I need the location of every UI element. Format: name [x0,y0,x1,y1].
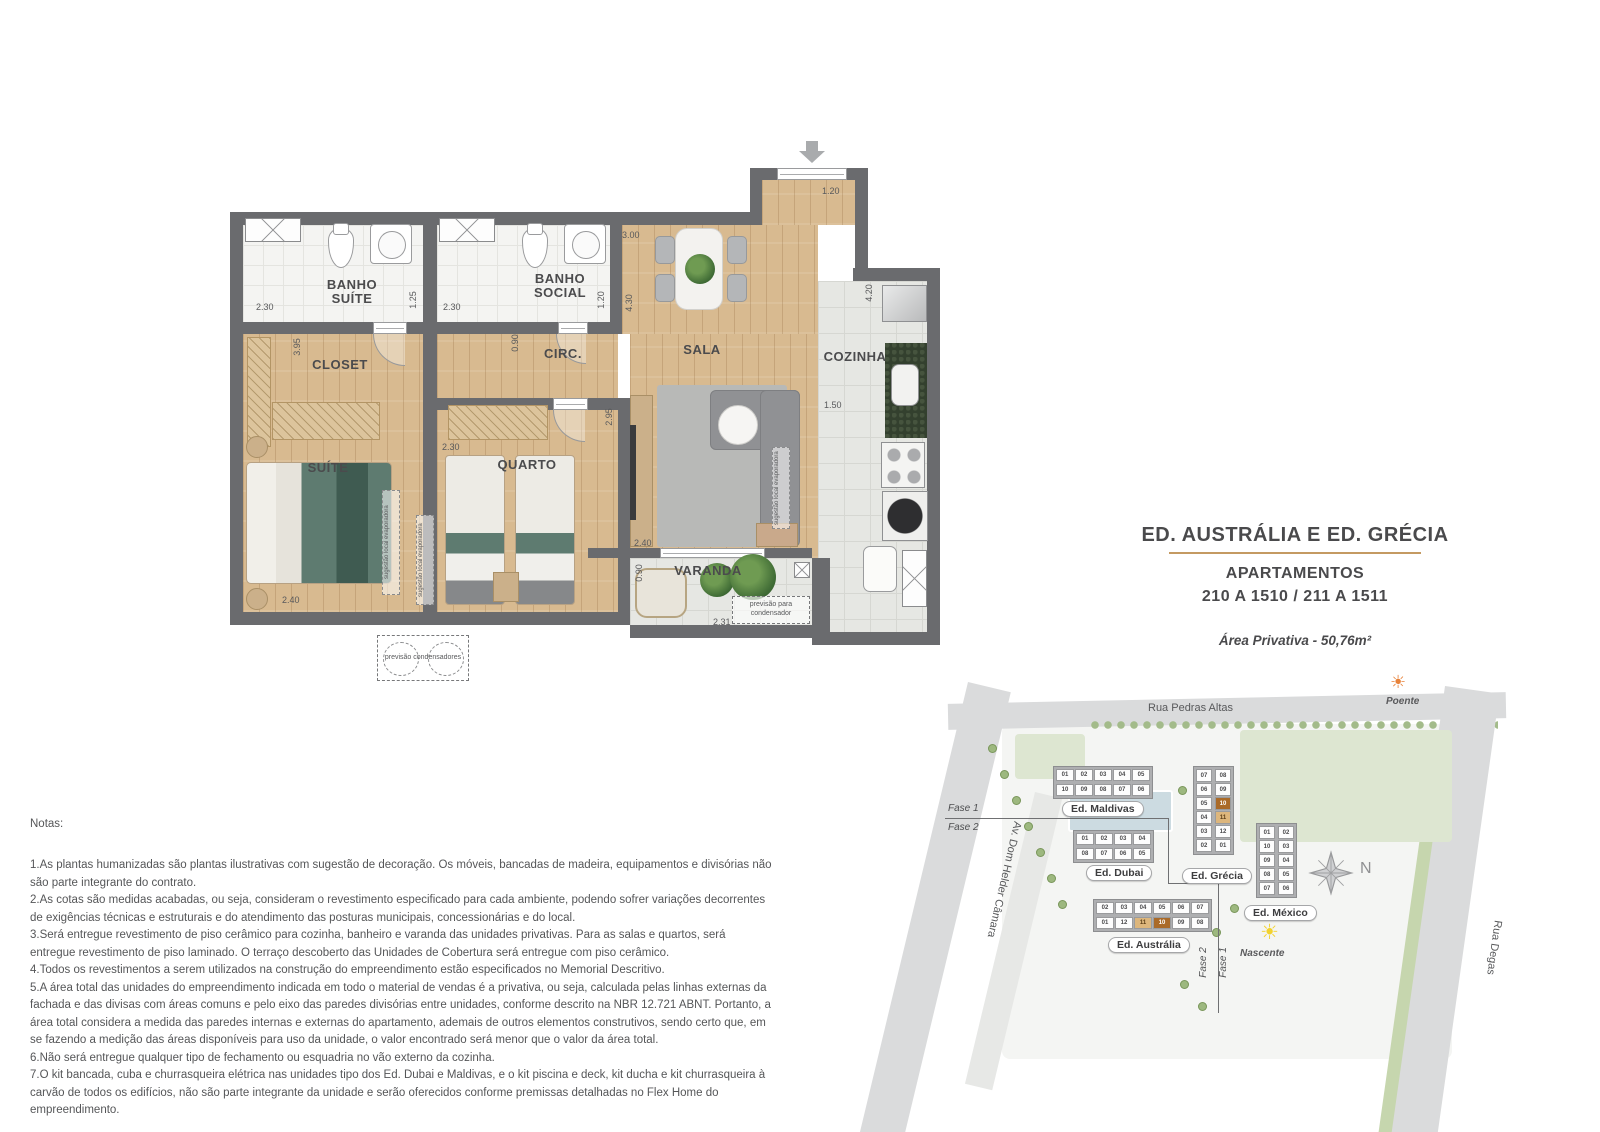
wall-bath-bottom-1 [230,322,373,334]
fridge-icon [882,285,927,322]
unit-cell-06: 06 [1172,902,1190,914]
unit-cell-11: 11 [1215,811,1231,824]
suite-nightstand-2 [246,588,268,610]
dim-varanda-231: 2.31 [713,617,731,627]
dim-bsocial-230: 2.30 [443,302,461,312]
sink-suite-icon [370,224,412,264]
tree-icon [1024,822,1033,831]
unit-cell-08: 08 [1191,917,1209,929]
unit-cell-01: 01 [1056,769,1074,781]
unit-cell-06: 06 [1196,783,1212,796]
fase2-label-vertical: Fase 2 [1198,947,1209,978]
unit-cell-01: 01 [1096,917,1114,929]
wall-top [230,212,762,225]
dim-bsuite-125: 1.25 [408,291,418,309]
room-label-closet: CLOSET [295,358,385,372]
wall-varanda-stub-r [765,548,812,558]
evaporator-note-suite: sugestão local evaporadora [382,490,400,595]
notes-heading: Notas: [30,816,772,833]
closet-shelf [272,402,380,440]
brochure-page: sugestão local evaporadora sugestão loca… [0,0,1600,1132]
dim-sala-430: 4.30 [624,294,634,312]
unit-cell-08: 08 [1076,848,1094,860]
entry-door [777,168,847,180]
unit-cell-12: 12 [1215,825,1231,838]
unit-cell-04: 04 [1133,833,1151,845]
tree-icon [1198,1002,1207,1011]
quarto-door [553,398,588,410]
unit-cell-03: 03 [1094,769,1112,781]
room-label-banho-social: BANHO SOCIAL [520,272,600,301]
wall-left [230,212,243,625]
compass-icon [1308,850,1354,896]
unit-cell-08: 08 [1259,868,1275,881]
unit-cell-05: 05 [1133,848,1151,860]
dim-circ-090: 0.90 [510,334,520,352]
dim-bsocial-120: 1.20 [596,291,606,309]
street-rua-degas: Rua Degas [1484,919,1504,975]
unit-cell-09: 09 [1075,784,1093,796]
dining-chair-3 [727,236,747,264]
building-maldivas: 01020304051009080706 [1053,766,1153,799]
unit-cell-05: 05 [1132,769,1150,781]
compass-n-label: N [1360,860,1372,878]
sink-social-icon [564,224,606,264]
room-label-banho-suite: BANHO SUÍTE [312,278,392,307]
tree-icon [1180,980,1189,989]
banho-suite-door [373,322,407,334]
unit-cell-10: 10 [1259,840,1275,853]
unit-cell-07: 07 [1113,784,1131,796]
wall-entry-stub-l [750,168,777,180]
unit-cell-04: 04 [1134,902,1152,914]
tree-icon [1047,874,1056,883]
poente-label: Poente [1386,696,1419,707]
building-grecia: 070605040302080910111201 [1193,766,1234,855]
tree-icon [1058,900,1067,909]
laundry-tank-icon [863,546,897,592]
shaft-varanda [794,562,810,578]
label-ed-grecia: Ed. Grécia [1182,868,1252,884]
sun-poente-icon: ☀ [1390,674,1406,692]
note-item: 6.Não será entregue qualquer tipo de fec… [30,1050,772,1067]
unit-cell-11: 11 [1134,917,1152,929]
unit-cell-09: 09 [1172,917,1190,929]
unit-cell-01: 01 [1259,826,1275,839]
street-rua-pedras-altas: Rua Pedras Altas [1148,702,1233,714]
wall-bath-bottom-3 [588,322,622,334]
dim-quarto-230: 2.30 [442,442,460,452]
room-label-sala: SALA [662,343,742,357]
unit-cell-10: 10 [1056,784,1074,796]
unit-cell-08: 08 [1215,769,1231,782]
fase-line-h1 [945,818,1168,819]
entry-arrow-icon [806,141,818,151]
note-item: 2.As cotas são medidas acabadas, ou seja… [30,892,772,927]
dim-varanda-090: 0.90 [634,564,644,582]
subtitle-apartamentos: APARTAMENTOS [1100,565,1490,583]
label-ed-australia: Ed. Austrália [1108,937,1190,953]
unit-cell-05: 05 [1196,797,1212,810]
site-map: Fase 1 Fase 2 Fase 2 Fase 1 010203040510… [940,672,1560,1120]
road-top-trees [1090,720,1498,730]
condensers-note-text: previsão condensadores [385,654,461,663]
wall-varanda-right [812,558,830,638]
unit-cell-08: 08 [1094,784,1112,796]
coffee-table [718,405,758,445]
tree-icon [1178,786,1187,795]
unit-cell-02: 02 [1095,833,1113,845]
title-underline [1169,552,1421,554]
nascente-label: Nascente [1240,948,1284,959]
dining-chair-4 [727,274,747,302]
dining-chair-2 [655,274,675,302]
wall-entry-right [855,168,868,281]
tv-panel-icon [630,425,636,520]
room-label-circ: CIRC. [523,347,603,361]
wall-varanda-left [618,558,630,625]
tree-icon [1000,770,1009,779]
wall-rooms-bottom [230,612,630,625]
unit-cell-01: 01 [1076,833,1094,845]
label-ed-dubai: Ed. Dubai [1086,865,1152,881]
unit-cell-02: 02 [1196,839,1212,852]
notes-section: Notas: 1.As plantas humanizadas são plan… [30,816,772,1132]
unit-cell-06: 06 [1132,784,1150,796]
tree-icon [1012,796,1021,805]
unit-cell-01: 01 [1215,839,1231,852]
dim-quarto-295: 2.95 [604,408,614,426]
fase2-label: Fase 2 [948,822,979,833]
label-ed-maldivas: Ed. Maldivas [1062,801,1144,817]
unit-cell-03: 03 [1114,833,1132,845]
private-area-label: Área Privativa - 50,76m² [1100,633,1490,648]
note-item: 7.O kit bancada, cuba e churrasqueira el… [30,1067,772,1119]
tree-icon [1036,848,1045,857]
shaft-cozinha [902,550,927,607]
unit-cell-06: 06 [1278,882,1294,895]
dim-closet-395: 3.95 [292,338,302,356]
wall-sala-varanda-stub [588,548,660,558]
evaporator-note-sala: sugestão local evaporadora [772,447,790,529]
dim-bsuite-230: 2.30 [256,302,274,312]
entry-arrow-head-icon [799,151,825,163]
closet-wardrobe-left [247,337,271,447]
washer-icon [882,491,928,541]
stove-icon [881,442,925,488]
table-plant-icon [685,254,715,284]
unit-cell-07: 07 [1191,902,1209,914]
tree-icon [988,744,997,753]
fase-line-v1 [1168,818,1169,883]
wall-bath-bottom-2 [407,322,558,334]
dim-entry: 1.20 [822,186,840,196]
suite-nightstand-1 [246,436,268,458]
unit-cell-10: 10 [1153,917,1171,929]
unit-cell-06: 06 [1114,848,1132,860]
unit-cell-05: 05 [1153,902,1171,914]
room-label-varanda: VARANDA [668,564,748,578]
note-item: 3.Será entregue revestimento de piso cer… [30,927,772,962]
fase1-label-vertical: Fase 1 [1218,947,1229,978]
room-label-cozinha: COZINHA [815,350,895,364]
shower-niche-social [439,218,495,242]
sun-nascente-icon: ☀ [1260,922,1279,943]
evaporator-note-quarto: sugestão local evaporadora [416,515,434,605]
kitchen-sink-icon [891,364,919,406]
unit-cell-02: 02 [1075,769,1093,781]
dim-sala-300: 3.00 [622,230,640,240]
wall-social-right [610,212,622,334]
room-label-quarto: QUARTO [487,458,567,472]
title-block: ED. AUSTRÁLIA E ED. GRÉCIA APARTAMENTOS … [1100,524,1490,648]
dim-sala-240: 2.40 [634,538,652,548]
unit-cell-04: 04 [1113,769,1131,781]
room-label-suite: SUÍTE [288,461,368,475]
notes-list: 1.As plantas humanizadas são plantas ilu… [30,857,772,1119]
wall-right [927,268,940,645]
building-mexico: 01100908070203040506 [1256,823,1297,898]
unit-cell-09: 09 [1259,854,1275,867]
dim-cozinha-420: 4.20 [864,284,874,302]
unit-cell-07: 07 [1259,882,1275,895]
subtitle-units: 210 A 1510 / 211 A 1511 [1100,588,1490,606]
label-ed-mexico: Ed. México [1244,905,1317,921]
unit-cell-02: 02 [1278,826,1294,839]
page-title: ED. AUSTRÁLIA E ED. GRÉCIA [1100,524,1490,547]
unit-cell-07: 07 [1095,848,1113,860]
dim-cozinha-150: 1.50 [824,400,842,410]
dining-chair-1 [655,236,675,264]
note-item: 5.A área total das unidades do empreendi… [30,980,772,1050]
unit-cell-10: 10 [1215,797,1231,810]
shower-niche-suite [245,218,301,242]
note-item: 1.As plantas humanizadas são plantas ilu… [30,857,772,892]
unit-cell-03: 03 [1278,840,1294,853]
banho-social-door [558,322,588,334]
quarto-bed-2 [515,455,575,605]
condensers-note: previsão condensadores [377,635,469,681]
quarto-nightstand [493,572,519,602]
building-dubai: 0102030408070605 [1073,830,1154,863]
wall-bath-divider [423,212,437,334]
note-item: 4.Todos os revestimentos a serem utiliza… [30,962,772,979]
unit-cell-09: 09 [1215,783,1231,796]
tree-icon [1212,928,1221,937]
unit-cell-07: 07 [1196,769,1212,782]
tree-icon [1230,904,1239,913]
condenser-note-varanda: previsão para condensador [732,596,810,624]
quarto-wardrobe [448,405,548,440]
dim-suite-240: 2.40 [282,595,300,605]
building-australia: 020304050607011211100908 [1093,899,1212,932]
unit-cell-12: 12 [1115,917,1133,929]
unit-cell-05: 05 [1278,868,1294,881]
suite-bed [246,462,392,584]
entry-floor [762,180,855,225]
floor-plan: sugestão local evaporadora sugestão loca… [230,140,942,698]
fase1-label: Fase 1 [948,803,979,814]
unit-cell-03: 03 [1115,902,1133,914]
unit-cell-04: 04 [1278,854,1294,867]
unit-cell-03: 03 [1196,825,1212,838]
wall-cozinha-bottom [812,632,940,645]
unit-cell-04: 04 [1196,811,1212,824]
unit-cell-02: 02 [1096,902,1114,914]
